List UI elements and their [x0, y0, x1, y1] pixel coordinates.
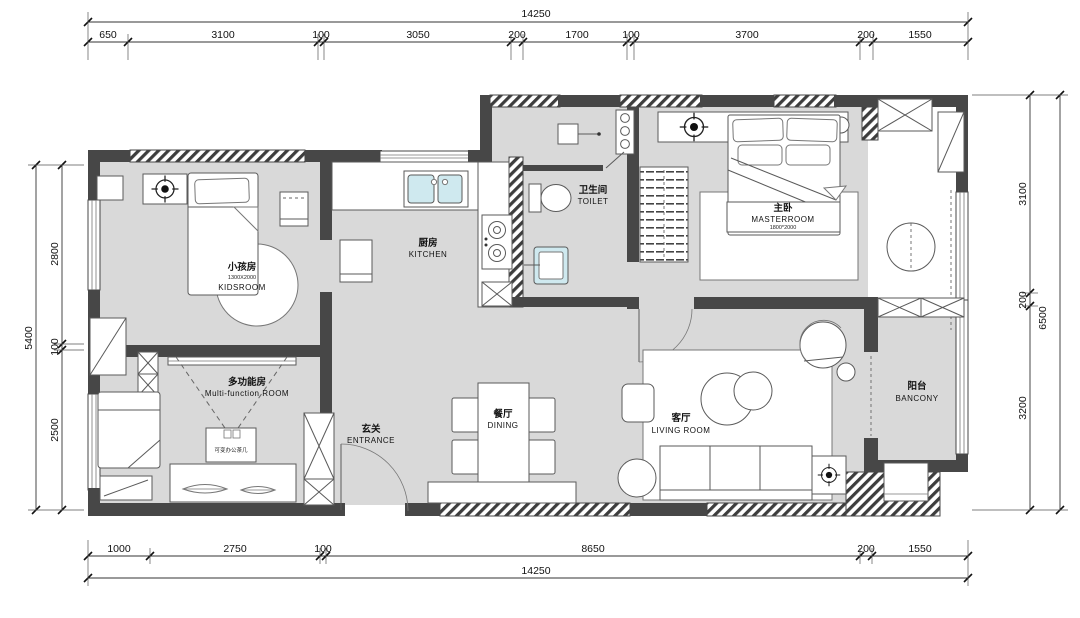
master-wall-cabinet: [878, 99, 932, 131]
side-table-square: [622, 384, 654, 422]
dim-top-3: 3050: [406, 29, 430, 41]
balcony-label-en: BANCONY: [895, 394, 938, 403]
kids-bed-size: 1300X2000: [228, 275, 256, 281]
multi-xbox-column: [138, 352, 158, 396]
multi-sofa: [170, 464, 296, 502]
dimension-left: 5400 2800 100 2500: [23, 161, 84, 514]
wall-top-right-hatch2: [620, 95, 702, 107]
dim-top-overall: 14250: [521, 8, 550, 20]
entrance-label-zh: 玄关: [361, 423, 381, 435]
dim-top-5: 1700: [565, 29, 589, 41]
dim-bottom-0: 1000: [107, 543, 131, 555]
multi-label-en: Multi-function ROOM: [205, 389, 289, 398]
dimension-bottom: 1000 2750 100 8650 200 1550 14250: [84, 540, 972, 586]
kids-room-label-zh: 小孩房: [227, 261, 257, 273]
multi-label-zh: 多功能房: [228, 376, 266, 388]
kitchen-sink: [404, 171, 468, 207]
balcony-cabinet-xbox: [878, 298, 964, 317]
wall-top-right-hatch1: [490, 95, 560, 107]
kids-window: [88, 200, 100, 290]
dim-right-2: 3200: [1017, 396, 1029, 420]
floor-plan-page: 小孩房 1300X2000 KIDSROOM 厨房 KITCHEN: [0, 0, 1080, 618]
dim-bottom-4: 200: [857, 543, 875, 555]
dim-top-0: 650: [99, 29, 117, 41]
living-sofa: [660, 446, 812, 500]
dim-bottom-3: 8650: [581, 543, 605, 555]
dim-right-1: 200: [1017, 291, 1029, 309]
dim-top-6: 100: [622, 29, 640, 41]
dim-top-7: 3700: [735, 29, 759, 41]
lounge-side-table: [837, 363, 855, 381]
master-window: [956, 192, 968, 300]
multi-sliding-door: [168, 357, 296, 365]
wall-toilet-divider: [523, 165, 603, 171]
balcony-label-zh: 阳台: [907, 380, 927, 392]
dim-left-2: 2500: [49, 418, 61, 442]
master-label-en: MASTERROOM: [751, 215, 814, 224]
multi-single-bed: [98, 392, 160, 468]
toilet-fixture: [529, 184, 571, 212]
floor-lamp: [812, 456, 846, 494]
balcony-window: [956, 300, 968, 454]
wall-master-bottom-a: [627, 297, 639, 309]
wall-top-right-hatch3: [774, 95, 836, 107]
multi-side-shelf: [100, 476, 152, 500]
side-table-round: [618, 459, 656, 497]
dimension-top: 14250 650 3100 100 3050 200 1700 100 370…: [84, 8, 972, 60]
dining-label-en: DINING: [488, 421, 519, 430]
wall-balcony-divider-top: [864, 297, 878, 352]
kitchen-window: [380, 151, 470, 162]
kids-nightstand: [280, 192, 308, 226]
coffee-table-small: [734, 372, 772, 410]
wall-top-right-b: [700, 95, 776, 107]
dim-top-8: 200: [857, 29, 875, 41]
wall-master-right-stub: [862, 107, 878, 140]
dim-bottom-5: 1550: [908, 543, 932, 555]
dining-table: [478, 383, 529, 493]
kitchen-label-en: KITCHEN: [409, 250, 448, 259]
wall-balcony-divider-bottom: [864, 438, 878, 472]
master-mirror-cabinet: [938, 112, 964, 172]
dim-bottom-1: 2750: [223, 543, 247, 555]
wall-kids-kitchen-a: [320, 162, 332, 240]
kitchen-corner-box: [482, 282, 512, 306]
master-label-zh: 主卧: [773, 202, 793, 214]
multi-table: [206, 428, 256, 462]
wall-bottom-hatch2: [707, 503, 868, 516]
wall-top-right-a: [558, 95, 622, 107]
wall-bottom-door-post: [405, 503, 440, 516]
living-label-en: LIVING ROOM: [652, 426, 711, 435]
dim-top-4: 200: [508, 29, 526, 41]
master-bed-size: 1800*2000: [770, 225, 797, 231]
master-round-table: [887, 223, 935, 271]
kitchen-stove: [482, 215, 512, 269]
dim-right-0: 3100: [1017, 182, 1029, 206]
wall-top-left-b: [305, 150, 382, 162]
dim-top-9: 1550: [908, 29, 932, 41]
dim-top-1: 3100: [211, 29, 235, 41]
multi-table-label: 可变办公茶几: [214, 446, 248, 454]
living-label-zh: 客厅: [670, 412, 691, 424]
multi-left-wardrobe: [90, 318, 126, 375]
wall-master-bottom-b: [694, 297, 868, 309]
entrance-cabinet-xbox: [304, 413, 334, 505]
dim-top-2: 100: [312, 29, 330, 41]
left-corner-niche: [97, 176, 123, 200]
dim-right-overall: 6500: [1037, 306, 1049, 330]
kitchen-fridge: [340, 240, 372, 282]
dining-sideboard: [428, 482, 576, 503]
toilet-label-en: TOILET: [578, 197, 609, 206]
wall-bottom-b: [630, 503, 707, 516]
wall-toilet-bottom: [509, 297, 634, 307]
entrance-label-en: ENTRANCE: [347, 436, 395, 445]
dim-bottom-2: 100: [314, 543, 332, 555]
balcony-bottom-niche: [884, 463, 928, 501]
dim-left-0: 2800: [49, 242, 61, 266]
dim-left-overall: 5400: [23, 326, 35, 350]
kitchen-label-zh: 厨房: [418, 237, 437, 249]
kids-room-label-en: KIDSROOM: [218, 283, 266, 292]
wall-top-left-hatch: [130, 150, 305, 162]
toilet-label-zh: 卫生间: [579, 184, 608, 196]
wall-kids-kitchen-b: [320, 292, 332, 360]
dimension-right: 3100 200 3200 6500: [972, 91, 1068, 514]
water-heater-icon: [616, 110, 634, 154]
dining-label-zh: 餐厅: [492, 408, 513, 420]
dim-left-1: 100: [49, 338, 61, 356]
floor-plan-drawing: 小孩房 1300X2000 KIDSROOM 厨房 KITCHEN: [0, 0, 1080, 618]
dim-bottom-overall: 14250: [521, 565, 550, 577]
wall-bottom-hatch1: [440, 503, 630, 516]
